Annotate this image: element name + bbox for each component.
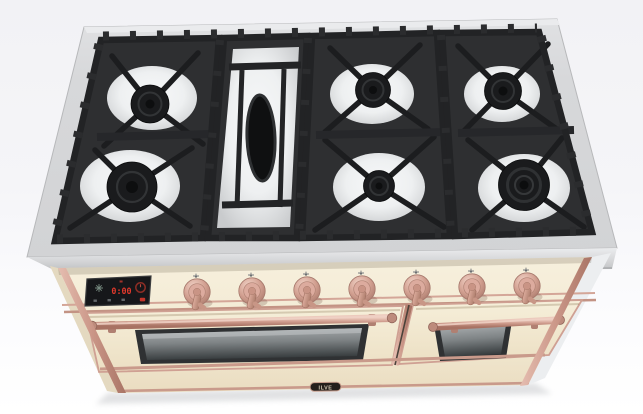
timer-icon xyxy=(108,299,111,301)
oven-display[interactable]: 0:00 xyxy=(85,276,151,306)
burner-front-center-cap xyxy=(376,183,383,190)
display-clock: 0:00 xyxy=(111,286,131,296)
right-handle-endcap-left xyxy=(429,323,438,332)
left-handle-endcap-right xyxy=(387,313,397,323)
range-cooker-render: ILVE 0:00 xyxy=(0,0,643,414)
mode-icon xyxy=(122,299,125,301)
griddle-rail-bottom xyxy=(222,203,293,205)
burner-grates xyxy=(54,28,592,241)
light-icon xyxy=(94,300,97,302)
power-icon xyxy=(140,298,145,302)
grate-midrail-right xyxy=(458,130,574,133)
burner-rear-right-cap xyxy=(499,87,508,96)
range-front: ILVE 0:00 xyxy=(50,253,611,404)
mode-dot-icon xyxy=(120,281,123,283)
burner-front-right-cap xyxy=(520,181,529,190)
brand-badge: ILVE xyxy=(310,382,341,391)
burner-rear-center-cap xyxy=(369,86,377,94)
grate-midrail-left xyxy=(97,134,212,137)
cooktop xyxy=(27,19,617,272)
grate-midrail-center xyxy=(316,132,446,135)
brand-badge-text: ILVE xyxy=(319,385,333,391)
range-cooker-scene: ILVE 0:00 xyxy=(0,0,643,414)
burner-front-left-cap xyxy=(126,181,138,193)
burner-rear-left-cap xyxy=(146,100,155,109)
griddle-rail-top xyxy=(229,65,301,67)
